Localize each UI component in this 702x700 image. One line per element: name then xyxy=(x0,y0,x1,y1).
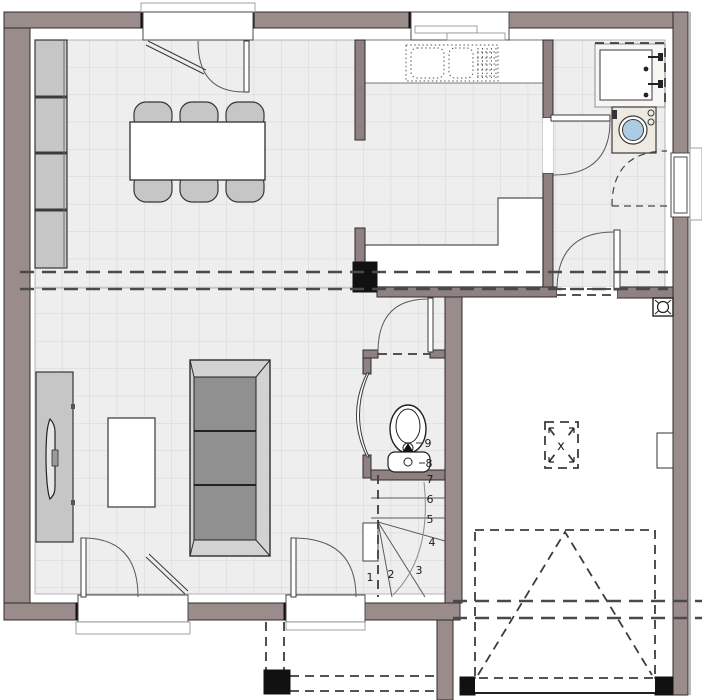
washing-machine xyxy=(612,107,656,153)
chimney-block xyxy=(353,262,377,292)
porch-outline xyxy=(264,622,437,694)
stair-step-6: 6 xyxy=(427,493,434,506)
utility-sink xyxy=(595,43,665,107)
stair-step-3: 3 xyxy=(416,564,423,577)
wc-basin xyxy=(388,452,430,472)
porch-post xyxy=(264,670,290,694)
garage-door-opening xyxy=(460,677,673,695)
tv-cabinet xyxy=(36,372,75,542)
stair-step-1: 1 xyxy=(367,571,374,584)
garage-niche xyxy=(657,433,673,468)
stair-step-4: 4 xyxy=(429,536,436,549)
downspout-symbol xyxy=(653,298,673,316)
roof-opening-label: x xyxy=(557,439,565,454)
floor-plan: 1 2 3 4 5 6 7 8 9 x xyxy=(0,0,702,700)
kitchen-counter-top xyxy=(365,40,543,83)
sofa xyxy=(190,360,270,556)
coffee-table xyxy=(108,418,155,507)
roof-opening-marker: x xyxy=(545,422,578,468)
stair-step-9: 9 xyxy=(425,437,432,450)
section-line-lower xyxy=(453,601,702,618)
garage-door-swing xyxy=(475,530,655,678)
stair-step-8: 8 xyxy=(426,457,433,470)
floor-plan-canvas: 1 2 3 4 5 6 7 8 9 x xyxy=(0,0,702,700)
dining-table xyxy=(130,122,265,180)
kitchen-window xyxy=(411,12,509,40)
stair-step-7: 7 xyxy=(427,473,434,486)
stair-step-2: 2 xyxy=(388,568,395,581)
stair-step-5: 5 xyxy=(427,513,434,526)
wc-toilet xyxy=(390,405,426,453)
shelving-unit xyxy=(35,40,67,268)
